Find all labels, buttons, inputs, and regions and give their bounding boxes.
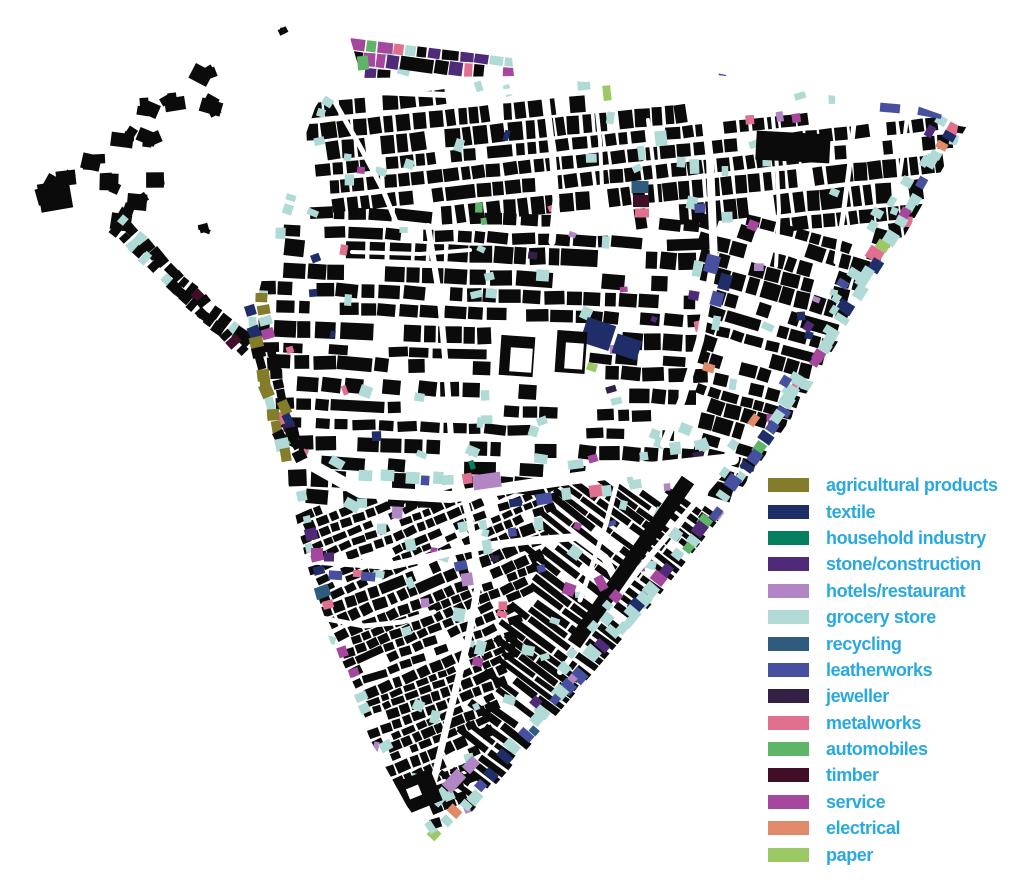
legend-swatch-jeweller (768, 689, 809, 703)
legend-item-textile: textile (768, 498, 1018, 524)
legend-item-jeweller: jeweller (768, 683, 1018, 709)
legend-label: leatherworks (826, 661, 932, 679)
legend-item-agricultural-products: agricultural products (768, 472, 1018, 498)
legend-swatch-leatherworks (768, 663, 809, 677)
legend-label: paper (826, 846, 873, 864)
legend-swatch-household-industry (768, 531, 809, 545)
legend-list: agricultural products textile household … (768, 472, 1018, 868)
legend-label: agricultural products (826, 476, 998, 494)
legend-swatch-service (768, 795, 809, 809)
figure-ground-industry-map-figure: agricultural products textile household … (0, 0, 1024, 892)
legend-swatch-stone-construction (768, 557, 809, 571)
nw-road-strip (109, 214, 255, 356)
legend-label: textile (826, 503, 875, 521)
legend-label: service (826, 793, 885, 811)
legend-item-recycling: recycling (768, 630, 1018, 656)
legend-swatch-hotels-restaurant (768, 584, 809, 598)
legend-label: household industry (826, 529, 986, 547)
legend-item-household-industry: household industry (768, 525, 1018, 551)
legend-label: recycling (826, 635, 901, 653)
legend-item-hotels-restaurant: hotels/restaurant (768, 578, 1018, 604)
legend-label: hotels/restaurant (826, 582, 965, 600)
legend-item-electrical: electrical (768, 815, 1018, 841)
legend-swatch-textile (768, 505, 809, 519)
legend-label: grocery store (826, 608, 936, 626)
nw-village-clusters (34, 26, 288, 234)
legend-swatch-recycling (768, 637, 809, 651)
legend-label: stone/construction (826, 555, 981, 573)
legend: agricultural products textile household … (768, 472, 1018, 868)
legend-swatch-timber (768, 768, 809, 782)
legend-swatch-metalworks (768, 716, 809, 730)
legend-item-grocery-store: grocery store (768, 604, 1018, 630)
legend-label: timber (826, 766, 879, 784)
legend-swatch-electrical (768, 821, 809, 835)
legend-label: metalworks (826, 714, 921, 732)
legend-item-timber: timber (768, 762, 1018, 788)
legend-item-leatherworks: leatherworks (768, 657, 1018, 683)
legend-label: jeweller (826, 687, 889, 705)
legend-label: automobiles (826, 740, 928, 758)
legend-item-stone-construction: stone/construction (768, 551, 1018, 577)
legend-swatch-grocery-store (768, 610, 809, 624)
legend-label: electrical (826, 819, 900, 837)
legend-swatch-automobiles (768, 742, 809, 756)
top-wedge-cluster (349, 38, 517, 82)
legend-item-service: service (768, 789, 1018, 815)
legend-item-paper: paper (768, 841, 1018, 867)
legend-item-automobiles: automobiles (768, 736, 1018, 762)
legend-swatch-agricultural-products (768, 478, 809, 492)
legend-swatch-paper (768, 848, 809, 862)
legend-item-metalworks: metalworks (768, 710, 1018, 736)
